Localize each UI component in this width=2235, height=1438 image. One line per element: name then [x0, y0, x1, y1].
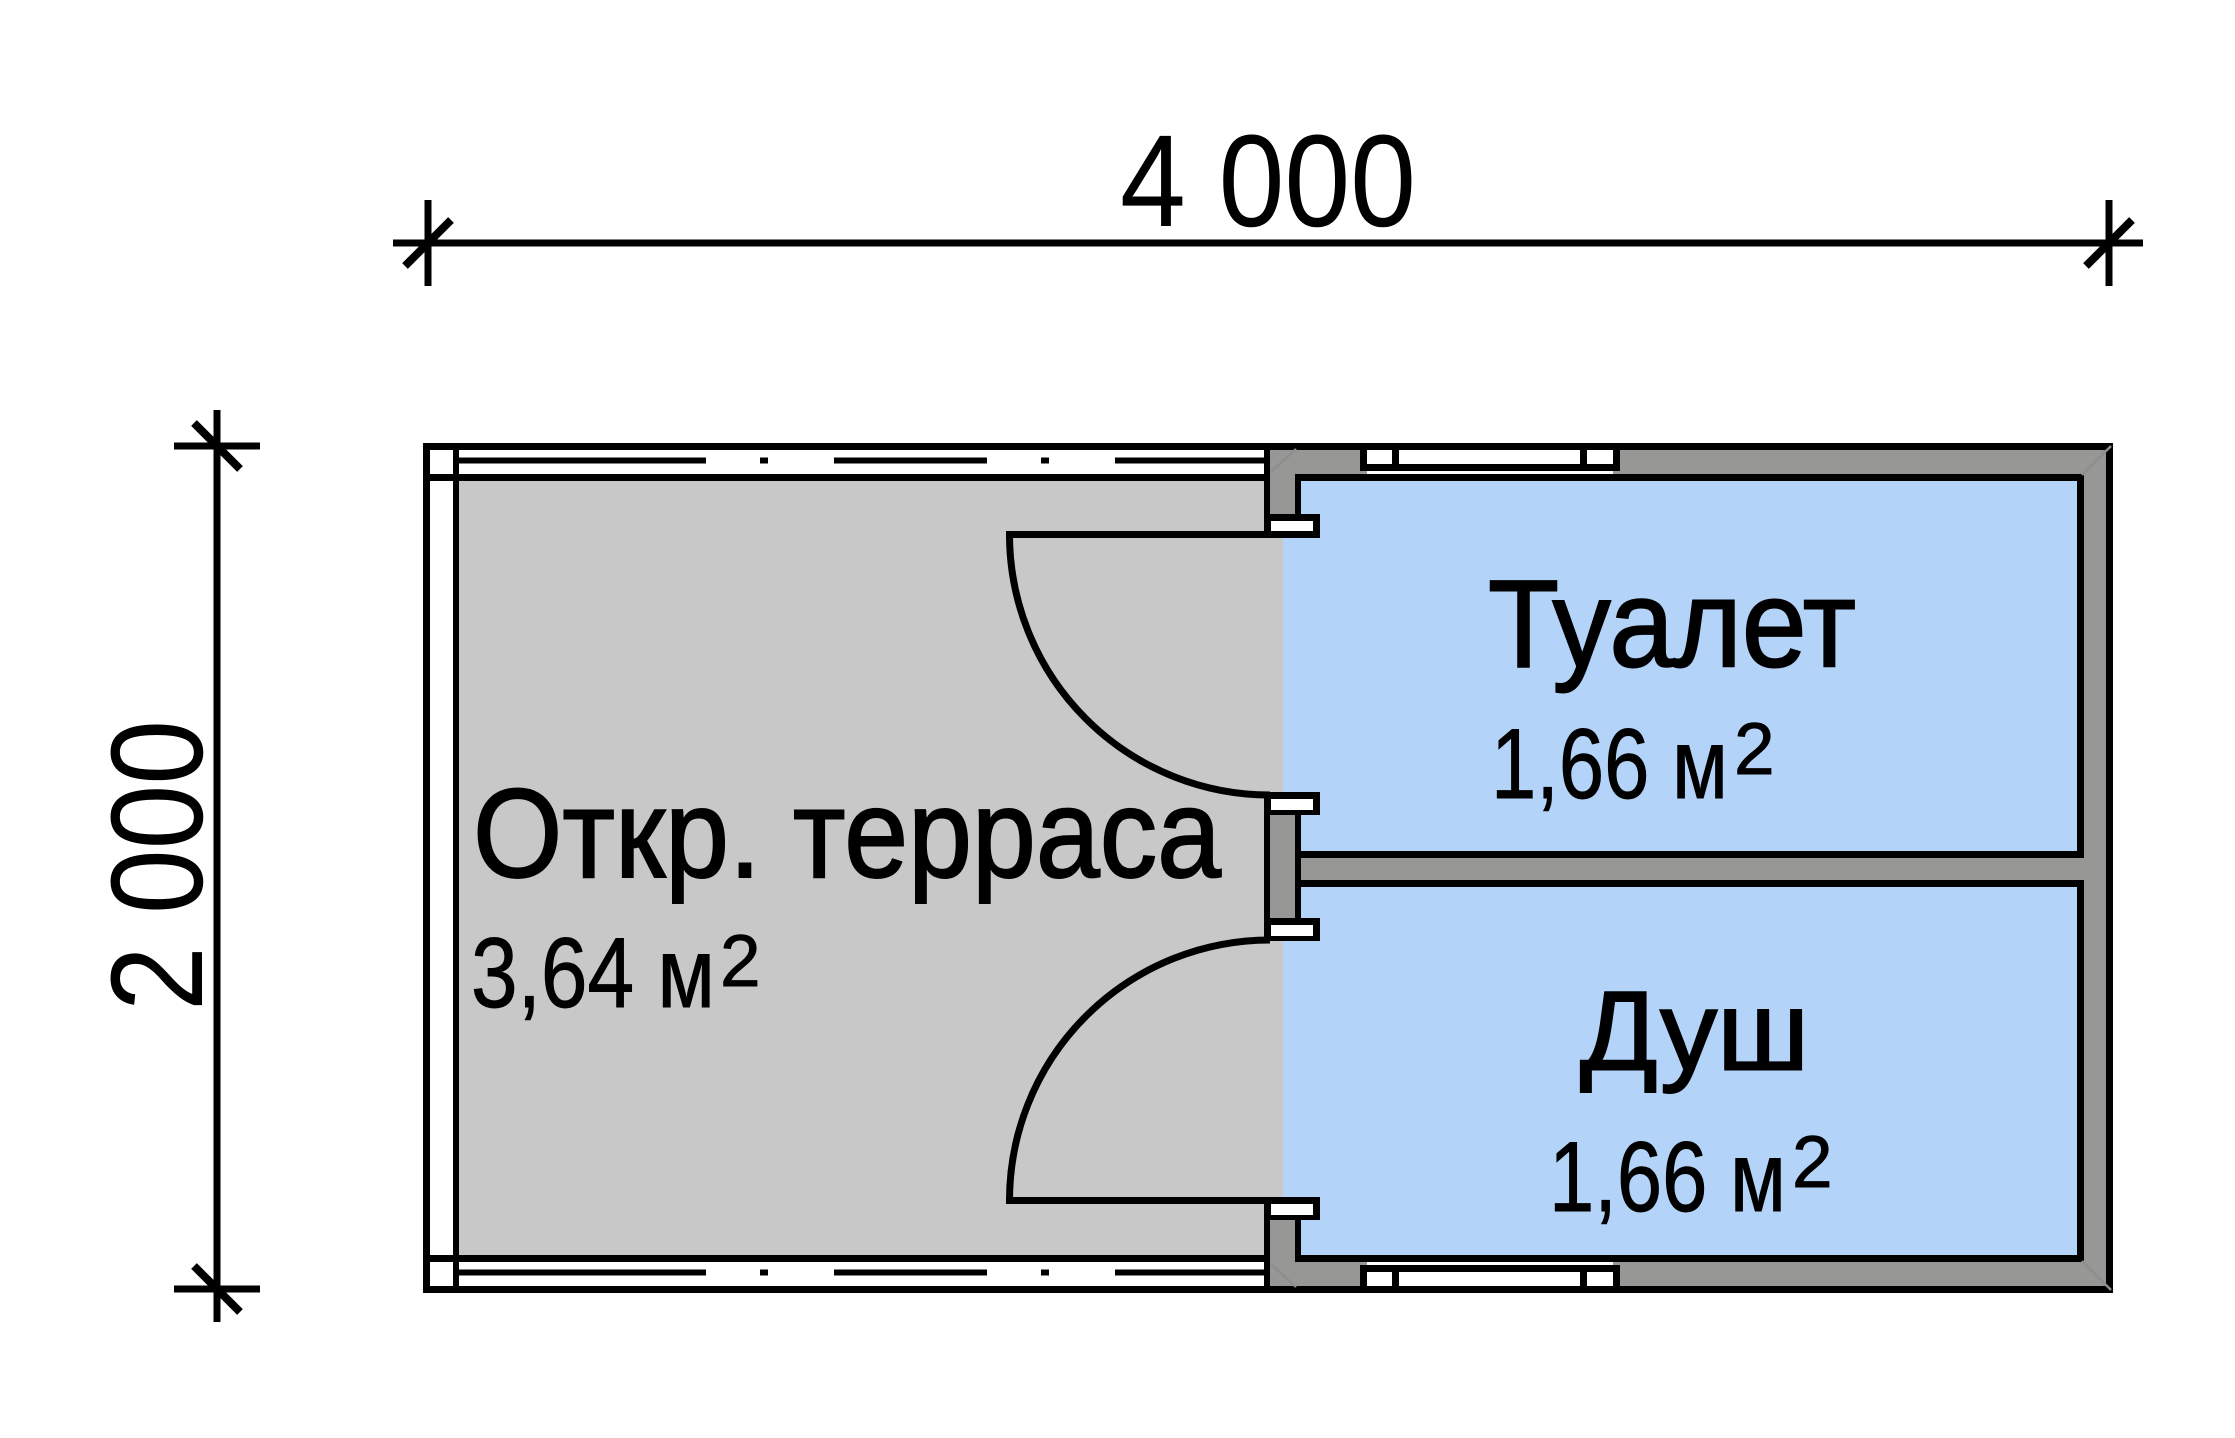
svg-text:2: 2 — [720, 921, 761, 1002]
svg-text:3,64 м: 3,64 м — [471, 917, 715, 1028]
svg-text:Душ: Душ — [1580, 969, 1809, 1094]
svg-text:2: 2 — [1734, 709, 1775, 790]
svg-text:2 000: 2 000 — [83, 720, 230, 1011]
svg-text:2: 2 — [1792, 1122, 1833, 1203]
svg-text:1,66 м: 1,66 м — [1549, 1121, 1786, 1232]
svg-text:1,66 м: 1,66 м — [1491, 708, 1728, 819]
svg-text:Откр. терраса: Откр. терраса — [473, 763, 1222, 904]
svg-text:4 000: 4 000 — [1120, 107, 1416, 254]
svg-text:Туалет: Туалет — [1488, 556, 1856, 694]
